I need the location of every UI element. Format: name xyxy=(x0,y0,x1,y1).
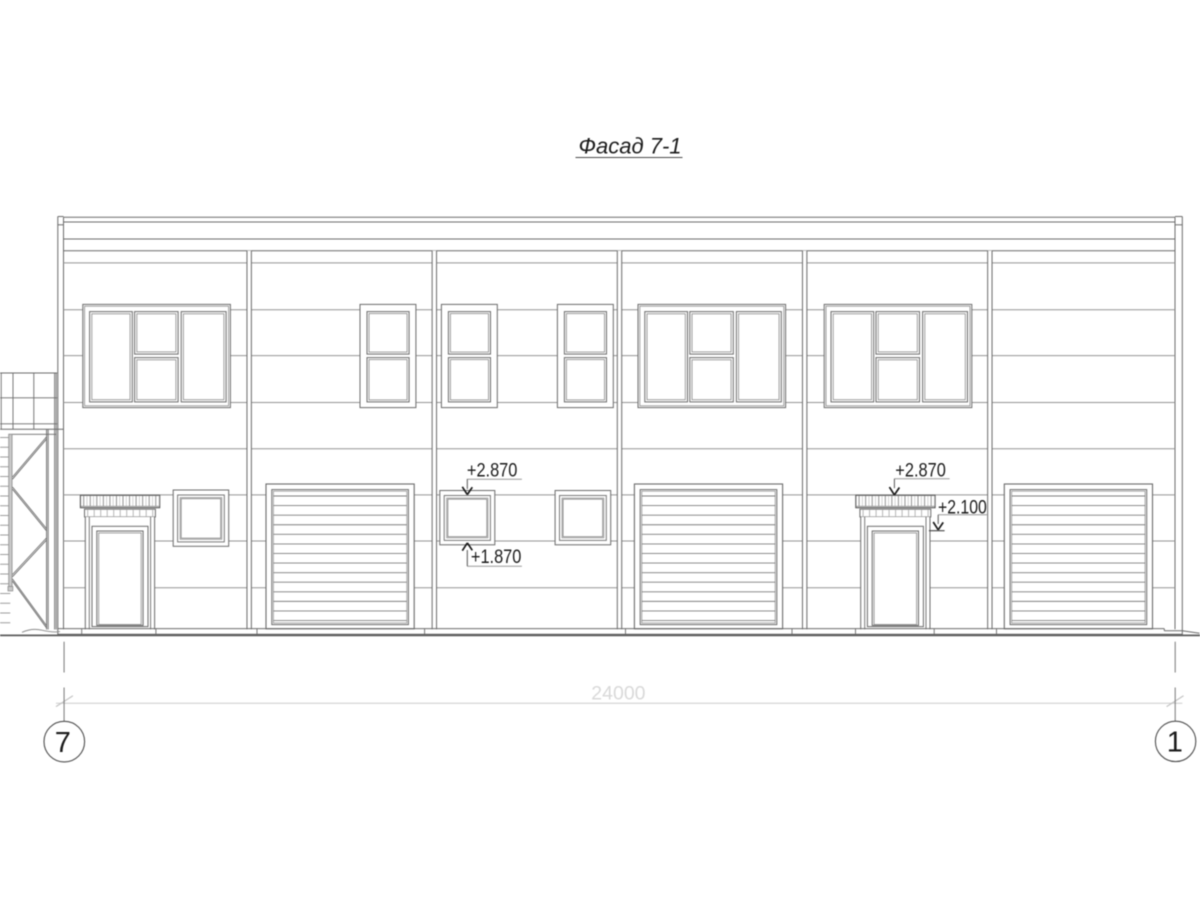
svg-text:+2.870: +2.870 xyxy=(895,460,946,481)
svg-text:24000: 24000 xyxy=(591,682,645,704)
svg-text:+1.870: +1.870 xyxy=(471,547,522,568)
svg-text:+2.870: +2.870 xyxy=(467,460,518,481)
svg-text:7: 7 xyxy=(55,727,71,759)
svg-text:Фасад 7-1: Фасад 7-1 xyxy=(578,134,681,159)
svg-text:1: 1 xyxy=(1167,727,1183,759)
